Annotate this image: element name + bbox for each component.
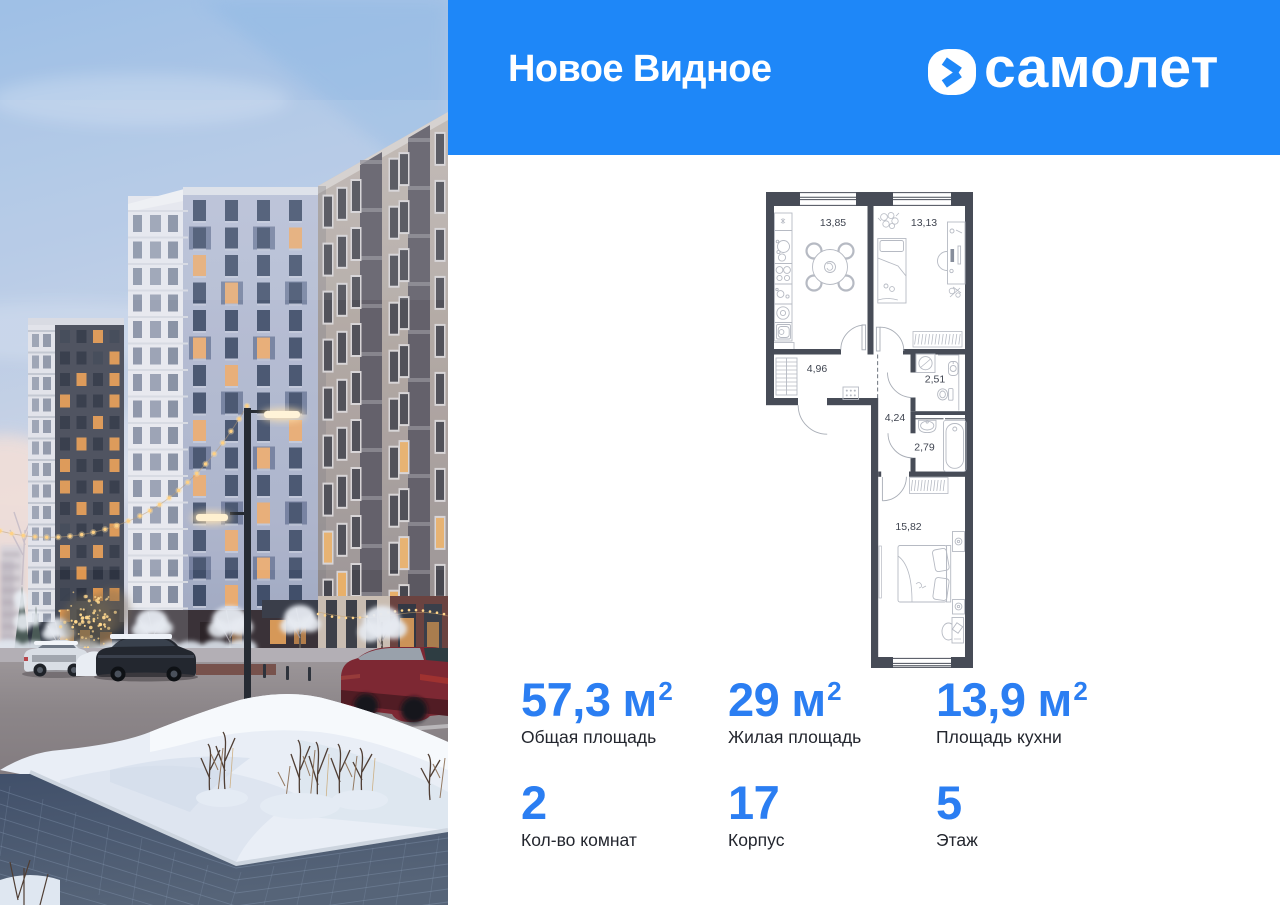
svg-text:4,24: 4,24 (885, 412, 906, 424)
svg-text:2,51: 2,51 (925, 374, 946, 386)
svg-text:13,13: 13,13 (911, 217, 937, 229)
svg-text:15,82: 15,82 (895, 521, 921, 533)
svg-text:13,85: 13,85 (820, 217, 846, 229)
svg-text:4,96: 4,96 (807, 363, 828, 375)
svg-text:2,79: 2,79 (914, 442, 935, 454)
